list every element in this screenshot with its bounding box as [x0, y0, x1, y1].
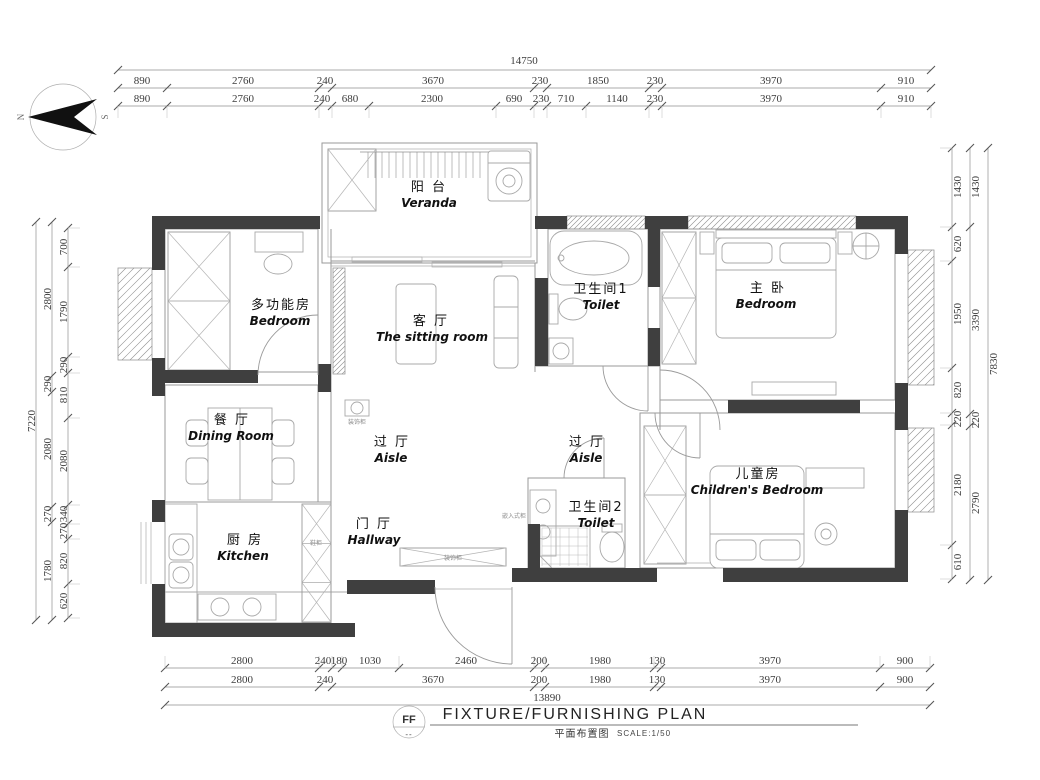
compass: N S	[16, 84, 110, 150]
dim-value: 2760	[232, 75, 255, 87]
left-bay-window	[118, 268, 152, 360]
dim-top-total-line	[114, 66, 935, 74]
room-label-cn: 儿童房	[735, 466, 780, 482]
desk	[255, 232, 303, 252]
drawing-code-sub: --	[405, 730, 412, 739]
dim-value: 340	[58, 505, 70, 522]
room-label-cn: 卫生间2	[568, 500, 623, 515]
toilet1-window	[567, 216, 645, 229]
dim-value: 710	[558, 93, 575, 105]
dim-right-middle-line	[966, 144, 974, 584]
nightstand	[700, 232, 714, 254]
room-label-en: Dining Room	[188, 429, 274, 443]
dim-value: 910	[898, 75, 915, 87]
dim-value: 220	[970, 411, 982, 428]
toilet-bowl	[600, 532, 624, 562]
floor-plan-canvas: N S	[0, 0, 1040, 780]
dim-value: 700	[58, 238, 70, 255]
dim-value: 1430	[952, 176, 964, 199]
dim-value: 240	[314, 93, 331, 105]
dim-value: 230	[647, 75, 664, 87]
dim-value: 290	[42, 375, 54, 392]
compass-needle-icon	[28, 99, 97, 135]
chair	[272, 420, 294, 446]
dim-value: 3670	[422, 75, 445, 87]
washing-machine	[488, 151, 530, 201]
dim-value: 230	[532, 75, 549, 87]
dim-value: 270	[42, 505, 54, 522]
room-label-cn: 过 厅	[374, 435, 410, 450]
chair	[264, 254, 292, 274]
dim-value: 3970	[760, 93, 783, 105]
fixture-labels: 装饰柜 鞋柜 嵌入式柜 装饰柜	[310, 418, 526, 562]
dim-value: 2300	[421, 93, 444, 105]
veranda-cabinet	[328, 149, 376, 211]
dim-value: 3670	[422, 674, 445, 686]
room-label-cn: 过 厅	[569, 435, 605, 450]
dim-value: 620	[58, 592, 70, 609]
fixture-label: 装饰柜	[348, 418, 366, 426]
shelving-unit	[168, 232, 230, 370]
room-label-cn: 餐 厅	[214, 412, 250, 428]
headboard	[716, 230, 836, 238]
room-label-en: Bedroom	[250, 314, 311, 328]
dim-value: 230	[647, 93, 664, 105]
room-label-en: Toilet	[583, 298, 621, 312]
room-label-en: Aisle	[374, 451, 408, 465]
dim-value: 1950	[952, 303, 964, 326]
dim-value: 270	[58, 522, 70, 539]
dim-value: 290	[58, 356, 70, 373]
room-label-en: Veranda	[401, 196, 457, 210]
floor-plan-drawing: N S	[0, 0, 1040, 780]
dim-value: 3970	[760, 75, 783, 87]
dim-value: 1140	[606, 93, 628, 105]
dim-value: 2800	[231, 674, 254, 686]
wardrobe	[662, 232, 696, 364]
room-label-en: Kitchen	[217, 549, 269, 563]
chair	[272, 458, 294, 484]
dim-text-right: 1430 620 1950 820 220 2180 610 1430 3390…	[952, 176, 1000, 571]
dim-bottom-row1-line	[161, 656, 934, 672]
veranda-curtainwall	[360, 152, 490, 178]
dim-right-inner-line	[940, 144, 956, 583]
room-label-cn: 主 卧	[750, 281, 786, 296]
drawing-code: FF	[402, 714, 416, 726]
right-bay-window-1	[908, 250, 934, 385]
plan-title-en: FIXTURE/FURNISHING PLAN	[443, 706, 708, 723]
title-block: FF -- FIXTURE/FURNISHING PLAN 平面布置图 SCAL…	[393, 706, 858, 740]
fixture-label: 鞋柜	[310, 539, 322, 547]
children-door	[655, 413, 700, 458]
dim-value: 1030	[359, 655, 382, 667]
dim-value: 2180	[952, 474, 964, 497]
dim-value: 7220	[26, 410, 38, 433]
room-label-en: Aisle	[569, 451, 603, 465]
room-label-cn: 多功能房	[251, 297, 311, 313]
room-label-cn: 阳 台	[411, 180, 447, 195]
toilet-tank	[549, 294, 558, 324]
room-label-cn: 客 厅	[413, 313, 449, 329]
dim-value: 7830	[988, 353, 1000, 376]
sofa	[494, 276, 518, 368]
room-label-en: Bedroom	[736, 297, 797, 311]
veranda-furniture	[488, 151, 530, 201]
dim-value: 820	[952, 381, 964, 398]
dim-value: 13890	[533, 692, 561, 704]
master-window	[688, 216, 856, 229]
dim-value: 1850	[587, 75, 610, 87]
fixture-label: 装饰柜	[444, 554, 462, 562]
tall-cabinet	[302, 504, 331, 622]
dim-value: 2760	[232, 93, 255, 105]
room-label-en: Toilet	[578, 516, 616, 530]
dim-value: 2800	[42, 288, 54, 311]
toilet1-door	[603, 366, 648, 411]
plan-title-cn: 平面布置图	[555, 728, 610, 740]
tv-bench	[752, 382, 836, 395]
entry-door	[435, 587, 512, 664]
dim-value: 1430	[970, 176, 982, 199]
dim-value: 240	[315, 655, 332, 667]
dim-value: 890	[134, 93, 151, 105]
dim-value: 240	[317, 674, 334, 686]
dim-value: 2080	[42, 438, 54, 461]
kitchen-furniture	[165, 504, 347, 623]
dim-value: 900	[897, 674, 914, 686]
dim-text-bottom: 2800 240 180 1030 2460 200 1980 130 3970…	[231, 655, 914, 704]
children-bedroom-furniture	[644, 426, 864, 568]
dim-value: 3970	[759, 655, 782, 667]
plan-scale: SCALE:1/50	[617, 729, 671, 738]
dim-value: 2790	[970, 492, 982, 515]
dim-value: 14750	[510, 55, 538, 67]
dim-text-left: 7220 2800 290 2080 270 1780 700 1790 290…	[26, 238, 70, 609]
dim-value: 1780	[42, 560, 54, 583]
room-label-en: Hallway	[347, 533, 401, 547]
room-label-cn: 厨 房	[227, 532, 263, 548]
dim-value: 220	[952, 410, 964, 427]
dim-text-top: 14750 890 2760 240 3670 230 1850 230 397…	[134, 55, 915, 105]
dim-value: 620	[952, 235, 964, 252]
dim-value: 3970	[759, 674, 782, 686]
wardrobe	[644, 426, 686, 564]
dim-value: 820	[58, 552, 70, 569]
dim-value: 200	[531, 655, 548, 667]
dim-value: 200	[531, 674, 548, 686]
stove	[198, 594, 276, 620]
dim-value: 240	[317, 75, 334, 87]
kitchen-window	[141, 522, 151, 584]
tv-wall	[333, 268, 345, 374]
dim-value: 810	[58, 386, 70, 403]
dim-value: 690	[506, 93, 523, 105]
dim-value: 3390	[970, 309, 982, 332]
nightstand	[838, 232, 852, 254]
stool	[815, 523, 837, 545]
dim-value: 130	[649, 655, 666, 667]
room-label-cn: 门 厅	[356, 517, 392, 532]
dim-value: 230	[533, 93, 550, 105]
dim-value: 900	[897, 655, 914, 667]
dim-value: 610	[952, 553, 964, 570]
master-bedroom-furniture	[662, 230, 879, 395]
dim-value: 130	[649, 674, 666, 686]
dim-value: 2080	[58, 450, 70, 473]
dim-value: 910	[898, 93, 915, 105]
fixture-label: 嵌入式柜	[502, 512, 526, 520]
dim-value: 2460	[455, 655, 478, 667]
compass-south-label: S	[100, 114, 110, 119]
dim-value: 890	[134, 75, 151, 87]
dim-bottom-row2-line	[161, 683, 934, 691]
right-bay-window-2	[908, 428, 934, 512]
room-label-en: Children's Bedroom	[691, 483, 824, 497]
dim-value: 680	[342, 93, 359, 105]
dim-value: 1980	[589, 655, 612, 667]
compass-north-label: N	[16, 113, 26, 120]
dim-value: 1790	[58, 301, 70, 324]
room-label-en: The sitting room	[376, 330, 488, 344]
dim-value: 180	[331, 655, 348, 667]
room-label-cn: 卫生间1	[573, 282, 628, 297]
dim-value: 1980	[589, 674, 612, 686]
dim-value: 2800	[231, 655, 254, 667]
chair	[186, 458, 208, 484]
